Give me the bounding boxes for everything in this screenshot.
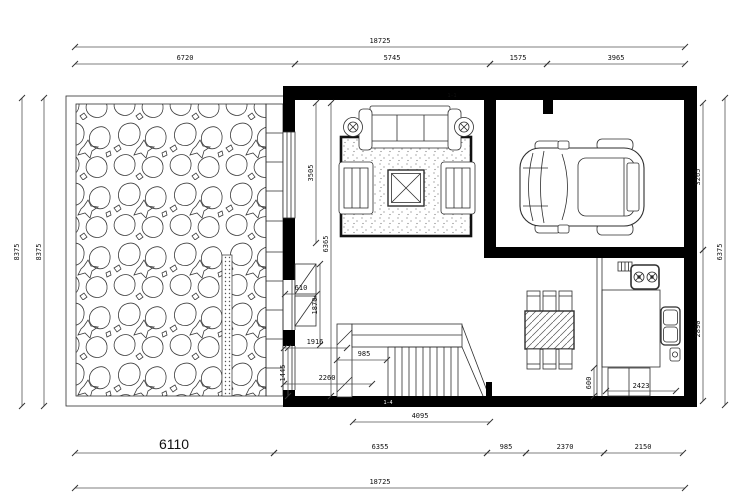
dining-chair <box>543 349 556 369</box>
dim-interior-h1: 1916 <box>307 338 324 346</box>
dim-bottom-seg1: 6110 <box>159 436 189 452</box>
coffee-table <box>388 170 424 206</box>
dining-set <box>525 291 574 369</box>
car <box>520 139 644 235</box>
wall-left-lower <box>283 330 295 346</box>
dining-chair <box>543 291 556 311</box>
wall-garage-left <box>484 100 496 250</box>
stair-newel <box>486 382 492 396</box>
dim-bottom-seg2: 6355 <box>372 443 389 451</box>
dim-bottom-total: 18725 <box>369 478 390 486</box>
dim-interior-v1: 1870 <box>311 298 319 315</box>
dim-bottom-seg3: 985 <box>500 443 513 451</box>
section-tag-top: 1-1 <box>447 93 456 99</box>
garage <box>520 139 644 235</box>
kitchen <box>597 258 680 396</box>
sofa <box>359 106 461 150</box>
dim-left-inner: 8375 <box>35 244 43 261</box>
left-window <box>283 132 295 218</box>
stairs <box>337 324 492 397</box>
dim-interior-long: 6365 <box>322 236 330 253</box>
armchair-right <box>441 162 475 214</box>
floor-plan-drawing: 18725 6720 5745 1575 3965 8375 8375 3265… <box>0 0 740 500</box>
dim-bottom-seg5: 2150 <box>635 443 652 451</box>
stone-paving <box>76 104 266 396</box>
small-fixture <box>670 348 680 361</box>
dim-top-seg4: 3965 <box>608 54 625 62</box>
vent-grid <box>618 262 632 271</box>
dim-stair-run: 4095 <box>412 412 429 420</box>
living-room <box>339 106 475 236</box>
dining-chair <box>527 291 540 311</box>
dim-top-seg3: 1575 <box>510 54 527 62</box>
floor-lamp-left <box>344 118 363 137</box>
stair-rail-diagonal <box>462 325 489 396</box>
wall-left-mid <box>283 218 295 280</box>
armchair-left <box>339 162 373 214</box>
dim-interior-h2: 2260 <box>319 374 336 382</box>
kitchen-counter <box>602 290 660 367</box>
wall-garage-bottom <box>484 247 684 258</box>
wall-top <box>292 86 697 100</box>
dim-top-seg2: 5745 <box>384 54 401 62</box>
dim-kitchen-offset: 600 <box>585 377 593 390</box>
dim-right-seg-top: 3265 <box>694 169 702 186</box>
dining-chair <box>559 291 572 311</box>
dim-kitchen-counter: 2423 <box>633 382 650 390</box>
wall-left-bottom <box>283 390 295 407</box>
wall-bottom <box>292 396 697 407</box>
wall-stub <box>543 100 553 114</box>
dim-stair-width: 985 <box>358 350 371 358</box>
wall-left-upper <box>283 86 295 132</box>
garden-path <box>222 255 232 396</box>
stove <box>631 265 659 289</box>
dining-chair <box>559 349 572 369</box>
dim-right-outer: 6375 <box>716 244 724 261</box>
dim-top-total: 18725 <box>369 37 390 45</box>
floor-lamp-right <box>455 118 474 137</box>
kitchen-partition <box>597 258 602 396</box>
dim-left-outer: 8375 <box>13 244 21 261</box>
dining-chair <box>527 349 540 369</box>
dim-top-seg1: 6720 <box>177 54 194 62</box>
sink <box>661 307 680 345</box>
dim-bottom-seg4: 2370 <box>557 443 574 451</box>
dim-right-seg-bottom: 2890 <box>694 321 702 338</box>
floor-plan-canvas: 18725 6720 5745 1575 3965 8375 8375 3265… <box>0 0 740 500</box>
dining-table <box>525 311 574 349</box>
dim-cabinet-depth: 610 <box>295 284 308 292</box>
dim-interior-v2: 1445 <box>279 365 287 382</box>
wall-cabinets <box>295 264 316 326</box>
dim-living-height: 3505 <box>307 165 315 182</box>
section-tag-bottom: 1-4 <box>383 400 392 406</box>
yard-strip <box>266 104 283 396</box>
wall-right <box>684 100 697 396</box>
yard <box>66 96 292 406</box>
